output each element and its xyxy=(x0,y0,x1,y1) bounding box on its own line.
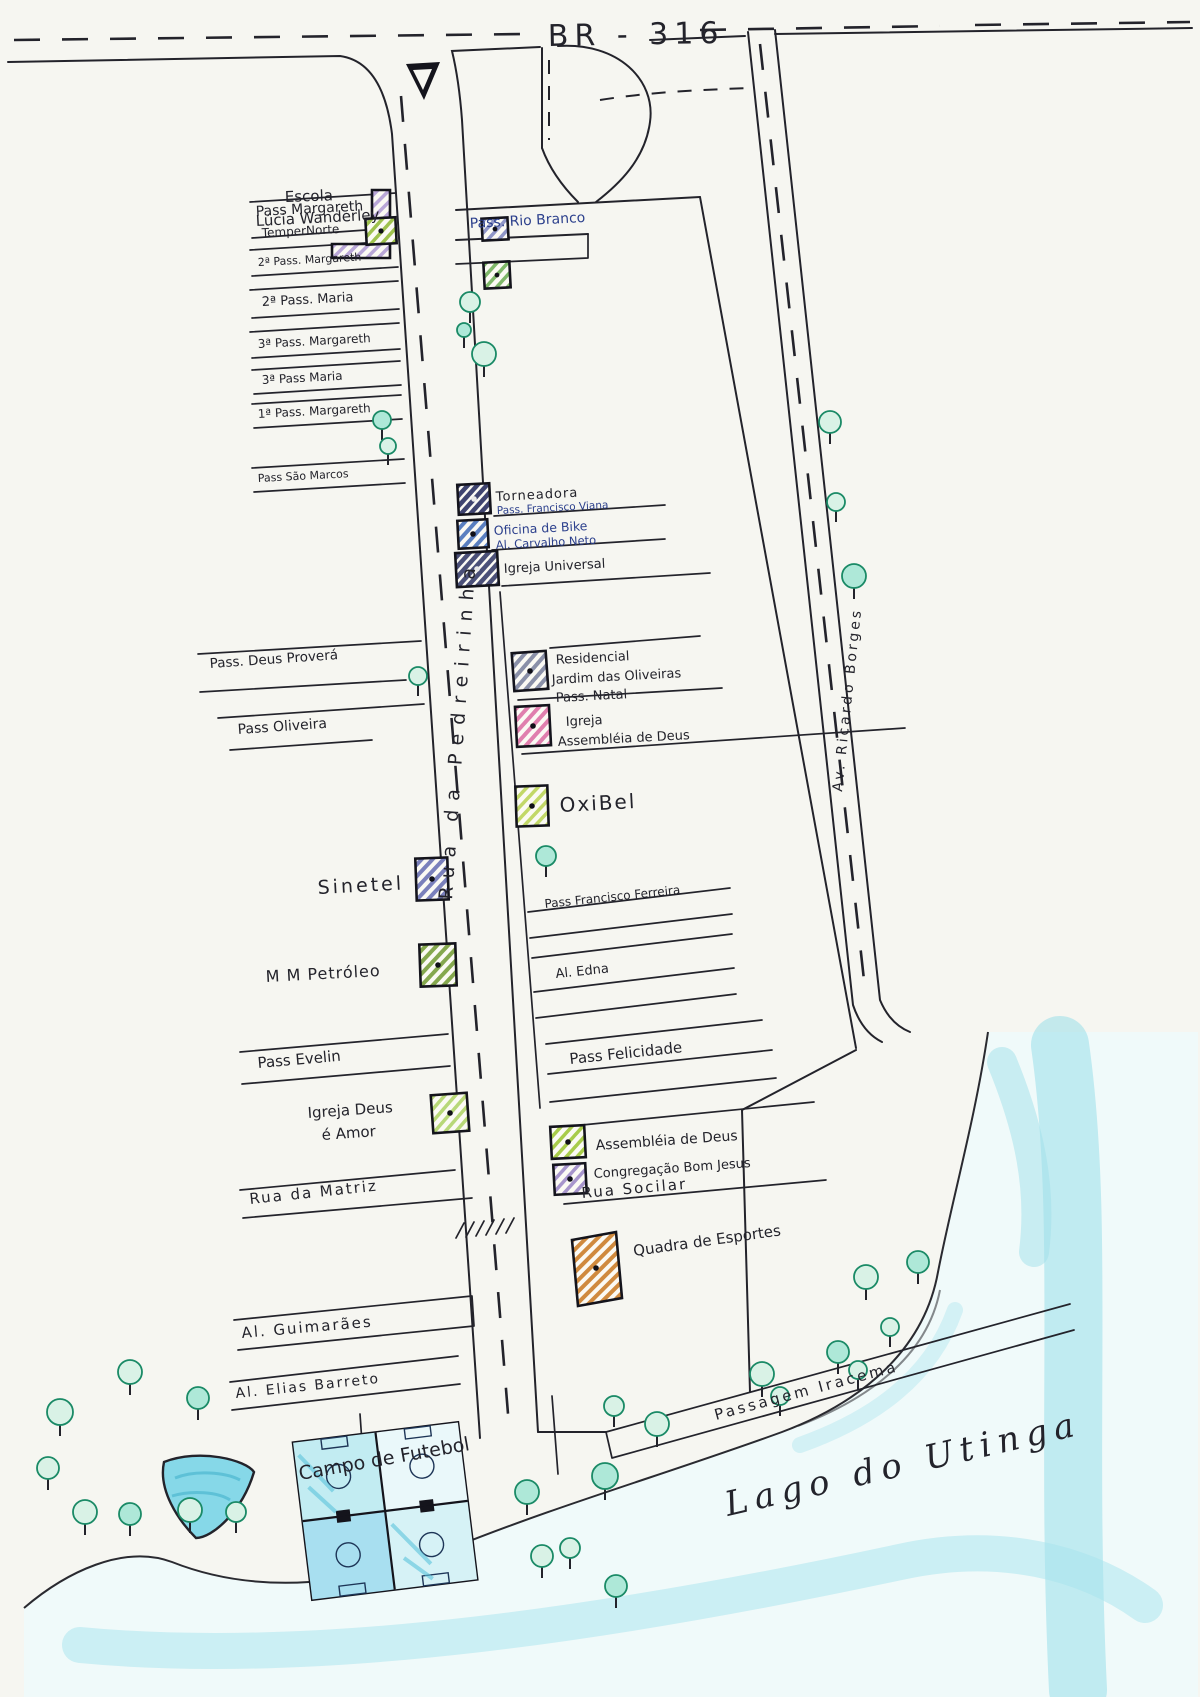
building-small-2 xyxy=(483,261,510,288)
place-label-mm-petroleo: M M Petróleo xyxy=(265,961,381,986)
tree-icon xyxy=(119,1503,141,1536)
street-label-pass-sao-marcos: Pass São Marcos xyxy=(257,467,349,485)
tree-icon xyxy=(226,1502,246,1533)
place-label-oxibel: OxiBel xyxy=(559,789,637,817)
street-label-1a-pass-margareth: 1ª Pass. Margareth xyxy=(257,401,371,421)
pond xyxy=(163,1456,254,1538)
street-label-3a-pass-margareth: 3ª Pass. Margareth xyxy=(257,331,371,351)
building-igreja-deus-e-amor xyxy=(431,1093,470,1133)
tree-icon xyxy=(457,323,471,348)
tree-icon xyxy=(73,1500,97,1535)
hand-drawn-map: BR - 316 Rua da Pedreirinha Av. Ricardo … xyxy=(0,0,1200,1697)
tree-icon xyxy=(827,1341,849,1374)
street-label-pass-francisco-ferreira: Pass Francisco Ferreira xyxy=(544,883,681,911)
tree-icon xyxy=(460,292,480,323)
tree-icon xyxy=(37,1457,59,1490)
tree-icon xyxy=(515,1480,539,1515)
building-assembleia-de-deus xyxy=(550,1125,586,1159)
building-torneadora xyxy=(457,483,491,515)
street-label-rua-da-matriz: Rua da Matriz xyxy=(249,1177,379,1208)
lago-do-utinga-water xyxy=(24,1032,1198,1697)
tree-icon xyxy=(881,1318,899,1347)
building-mm-petroleo xyxy=(419,943,456,986)
street-label-al-elias-barreto: Al. Elias Barreto xyxy=(235,1371,381,1402)
street-label-3a-pass-maria: 3ª Pass Maria xyxy=(261,369,342,387)
road-label-rua-pedreirinha: Rua da Pedreirinha xyxy=(435,558,481,900)
tree-icon xyxy=(827,493,845,522)
street-label-al-edna: Al. Edna xyxy=(555,961,610,982)
place-label-residencial-1: Residencial xyxy=(555,649,629,668)
street-label-2a-pass-margareth: 2ª Pass. Margareth xyxy=(257,251,361,269)
street-label-pass-rio-branco: Pass. Rio Branco xyxy=(469,210,585,232)
building-oficina-de-bike xyxy=(457,519,488,549)
place-label-sinetel: Sinetel xyxy=(317,872,405,898)
street-label-2a-pass-maria: 2ª Pass. Maria xyxy=(261,290,353,310)
tree-icon xyxy=(536,846,556,877)
road-label-av-ricardo-borges: Av. Ricardo Borges xyxy=(830,607,865,792)
tree-icon xyxy=(907,1251,929,1284)
street-label-pass-natal: Pass. Natal xyxy=(555,687,627,706)
place-label-igreja-deus-amor-1: Igreja Deus xyxy=(307,1098,393,1122)
tree-icon xyxy=(47,1399,73,1436)
street-label-pass-oliveira: Pass Oliveira xyxy=(237,716,327,738)
street-label-pass-felicidade: Pass Felicidade xyxy=(569,1038,683,1068)
tree-icon xyxy=(373,411,391,440)
building-quadra-de-esportes xyxy=(572,1232,622,1306)
place-label-igreja-deus-amor-2: é Amor xyxy=(321,1122,377,1144)
road-label-br316: BR - 316 xyxy=(548,16,725,54)
tree-icon xyxy=(409,667,427,696)
place-label-assembleia-de-deus: Assembléia de Deus xyxy=(595,1128,738,1154)
tree-icon xyxy=(854,1265,878,1300)
street-label-pass-evelin: Pass Evelin xyxy=(257,1047,342,1072)
place-label-igreja-universal: Igreja Universal xyxy=(503,557,605,577)
place-label-tempernorte: TemperNorte xyxy=(260,222,339,240)
tree-icon xyxy=(842,564,866,599)
place-label-quadra-de-esportes: Quadra de Esportes xyxy=(632,1221,782,1260)
tree-icon xyxy=(604,1396,624,1427)
tree-icon xyxy=(118,1360,142,1395)
place-label-residencial-2: Jardim das Oliveiras xyxy=(550,666,681,688)
street-label-pass-deus-provera: Pass. Deus Proverá xyxy=(209,647,338,672)
building-residencial-jardim-das-oliveiras xyxy=(512,651,549,691)
place-label-igreja-assembleia-1: Igreja xyxy=(565,713,602,730)
tree-icon xyxy=(187,1387,209,1420)
yield-triangle-icon xyxy=(406,62,440,100)
building-igreja-assembleia-de-deus xyxy=(515,705,551,747)
building-oxibel xyxy=(515,785,548,826)
tree-icon xyxy=(819,411,841,444)
tree-icon xyxy=(645,1412,669,1447)
